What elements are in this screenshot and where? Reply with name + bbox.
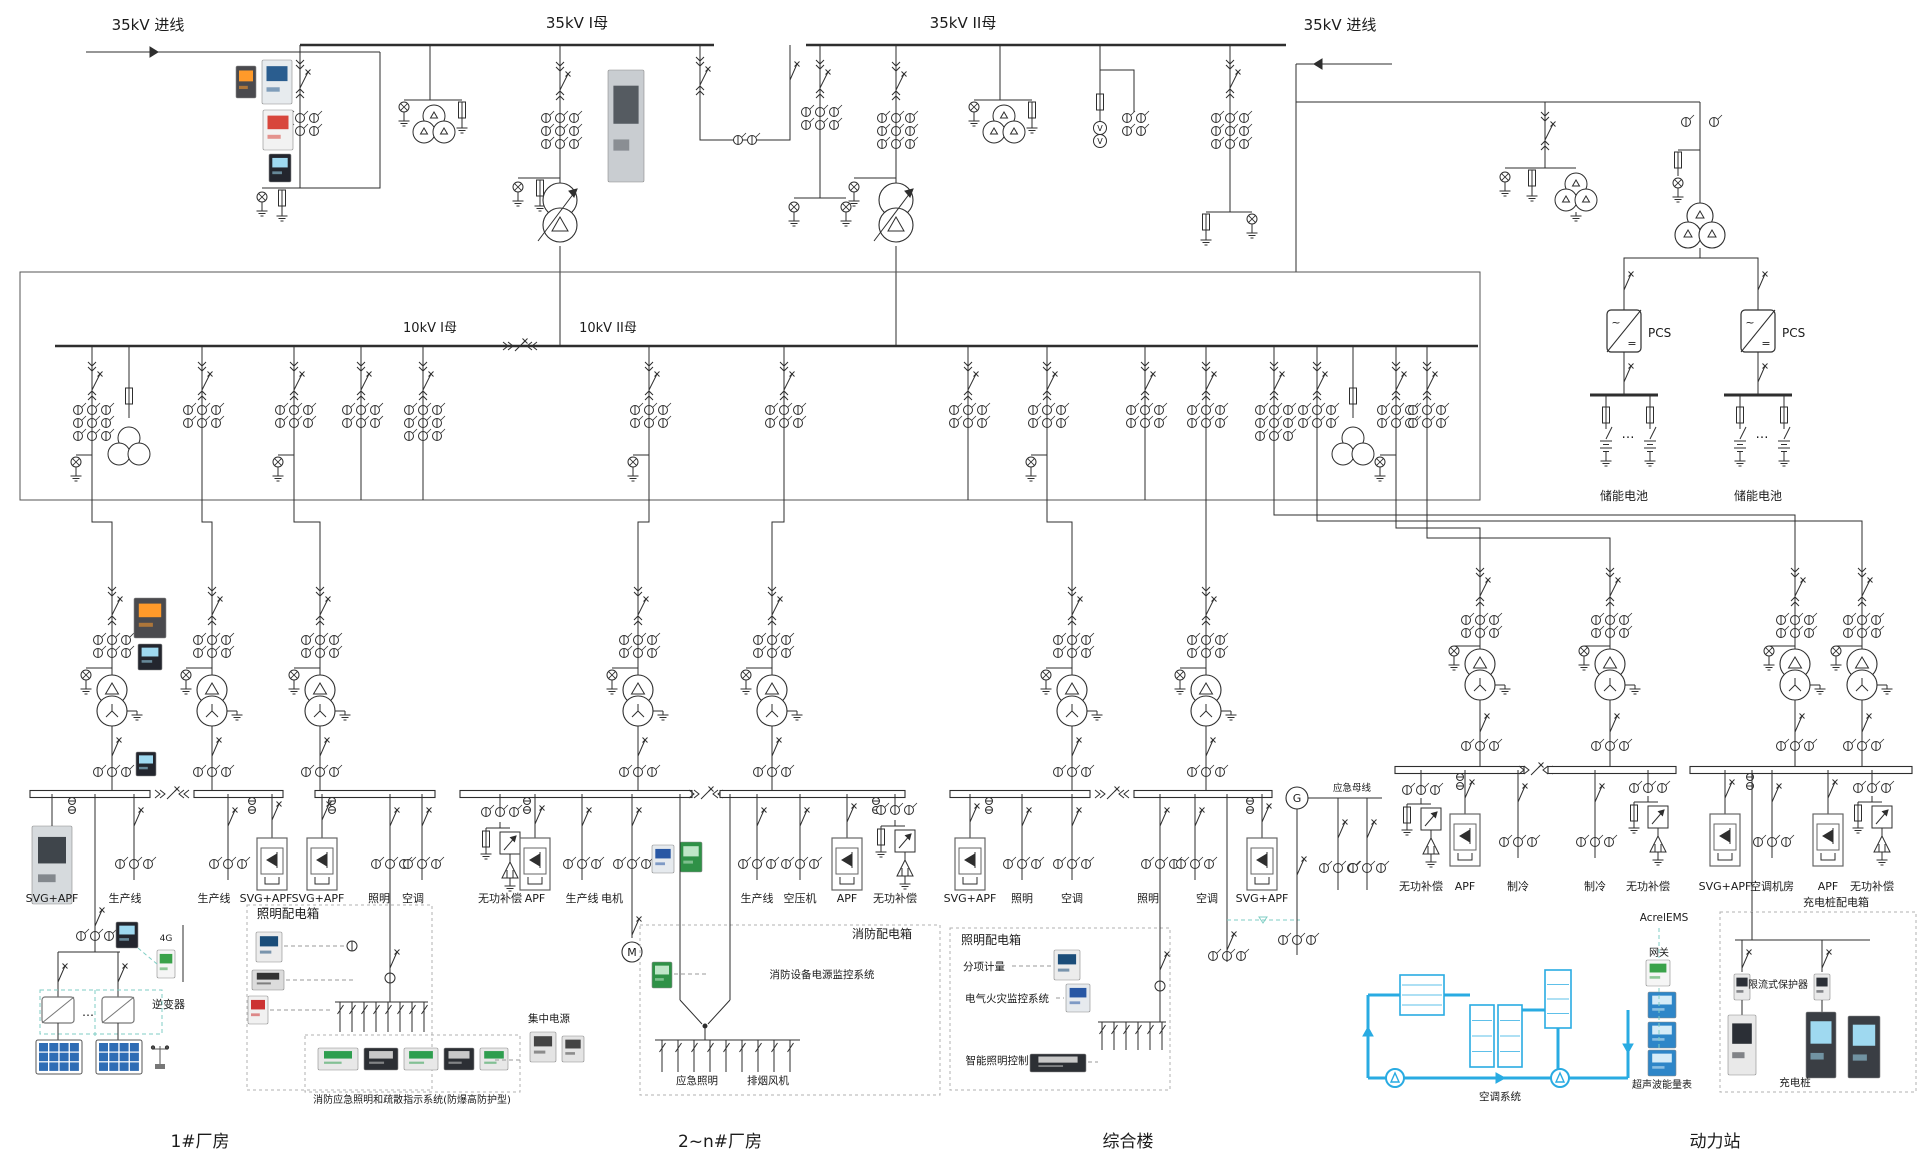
- svg-text:SVG+APF: SVG+APF: [1699, 880, 1752, 893]
- switch-icon: [970, 804, 980, 823]
- device-photo: [680, 842, 702, 872]
- indicator-lamp-icon: [789, 202, 800, 226]
- apf-cabinet-icon: [1247, 838, 1277, 890]
- feeder-branches: [1100, 1022, 1166, 1050]
- disconnector-icon: [892, 62, 907, 100]
- svg-text:35kV II母: 35kV II母: [930, 14, 997, 32]
- switch-icon: [1195, 808, 1205, 827]
- text-label: APF: [525, 892, 546, 905]
- switch-icon: [1338, 820, 1348, 839]
- disconnector-icon: [556, 62, 571, 100]
- riser-icon: [1457, 774, 1464, 790]
- switch-icon: [847, 804, 857, 823]
- svg-text:生产线: 生产线: [109, 891, 142, 905]
- text-label: 储能电池: [1600, 488, 1648, 503]
- flow-arrow-icon: [1363, 1027, 1373, 1036]
- text-label: 无功补偿: [1626, 879, 1670, 893]
- switch-icon: [1227, 932, 1237, 951]
- text-label: SVG+APF: [944, 892, 997, 905]
- switch-icon: [1160, 952, 1170, 971]
- fuse-icon: [1350, 388, 1357, 404]
- text-label: …: [1756, 427, 1769, 442]
- text-label: 10kV II母: [579, 321, 637, 336]
- svg-text:APF: APF: [1818, 880, 1839, 893]
- lv-busbar: [1134, 791, 1272, 798]
- voltmeter-icon: VV: [1094, 122, 1107, 148]
- apf-cabinet-icon: [1813, 814, 1843, 866]
- switch-icon: [1725, 780, 1735, 799]
- wire: [1047, 500, 1072, 560]
- ground-icon: [1571, 212, 1582, 221]
- switch-icon: [1742, 950, 1752, 969]
- svg-text:空压机: 空压机: [784, 891, 817, 905]
- capacitor-bank-icon: [1629, 796, 1669, 865]
- text-label: 生产线: [566, 891, 599, 905]
- svg-text:35kV 进线: 35kV 进线: [1304, 16, 1377, 34]
- text-label: SVG+APF: [240, 892, 293, 905]
- ats-icon: [680, 1000, 730, 1028]
- text-label: 充电桩: [1779, 1076, 1811, 1089]
- ct-icon: [1279, 933, 1320, 945]
- fuse-icon: [1675, 152, 1682, 168]
- text-label: 电气火灾监控系统: [965, 992, 1049, 1005]
- riser-icon: [1247, 798, 1254, 814]
- device-photo: [263, 110, 293, 150]
- pump-icon: [1386, 1069, 1404, 1087]
- lv-busbar: [460, 791, 692, 798]
- transformer-bay: [81, 560, 143, 794]
- apf-cabinet-icon: [307, 838, 337, 890]
- text-label: 空压机: [784, 891, 817, 905]
- lv-busbar: [1548, 767, 1676, 774]
- device-photo: [318, 1048, 358, 1070]
- device-photo: [364, 1048, 398, 1070]
- text-label: SVG+APF: [292, 892, 345, 905]
- text-label: 35kV II母: [930, 14, 997, 32]
- three-winding-transformer-icon: [1332, 427, 1374, 465]
- ct-icon: [564, 857, 605, 869]
- wire: [294, 500, 320, 560]
- text-label: APF: [837, 892, 858, 905]
- switch-icon: [1518, 784, 1528, 803]
- ct-icon: [614, 857, 655, 869]
- capacitor-bank-icon: [481, 822, 521, 891]
- pcs-converter-icon: ~=: [1607, 310, 1641, 352]
- text-label: 4G: [160, 934, 173, 944]
- transformer-bay: [1579, 548, 1641, 770]
- text-label: 35kV 进线: [112, 16, 185, 34]
- mv-feeder: [405, 346, 446, 500]
- svg-text:PCS: PCS: [1782, 326, 1805, 340]
- svg-text:…: …: [82, 1005, 94, 1019]
- svg-text:PCS: PCS: [1648, 326, 1671, 340]
- device-photo: [1648, 1022, 1676, 1048]
- three-winding-transformer-icon: [108, 427, 150, 465]
- text-label: 制冷: [1584, 880, 1606, 893]
- text-label: 空调系统: [1479, 1090, 1521, 1103]
- device-photo: [134, 598, 166, 638]
- switch-icon: [1072, 808, 1082, 827]
- ct-icon: [1349, 861, 1390, 873]
- flow-arrow-icon: [1623, 1044, 1633, 1053]
- switch-icon: [1262, 804, 1272, 823]
- text-label: 照明: [1011, 892, 1033, 905]
- device-photo: [1030, 1054, 1086, 1072]
- battery-string-icon: [1600, 395, 1612, 466]
- text-label: 超声波能量表: [1632, 1078, 1692, 1091]
- text-label: 照明: [1137, 892, 1159, 905]
- wire: [700, 45, 790, 140]
- svg-text:35kV I母: 35kV I母: [546, 14, 608, 32]
- wire: [1100, 70, 1134, 112]
- svg-text:无功补偿: 无功补偿: [1626, 879, 1670, 893]
- text-label: 制冷: [1507, 880, 1529, 893]
- device-photo: [138, 644, 162, 670]
- fuse-icon: [126, 388, 133, 404]
- text-label: PCS: [1648, 326, 1671, 340]
- three-winding-transformer-icon: [1555, 173, 1597, 211]
- comm-line: [138, 948, 157, 964]
- device-photo: [157, 950, 175, 978]
- indicator-lamp-icon: [273, 457, 284, 481]
- transformer-bay: [741, 560, 803, 794]
- capacitor-bank-icon: [1853, 796, 1893, 865]
- fuse-icon: [1527, 170, 1538, 201]
- svg-text:生产线: 生产线: [566, 891, 599, 905]
- svg-text:SVG+APF: SVG+APF: [1236, 892, 1289, 905]
- device-photo: [236, 66, 256, 98]
- flow-arrow-icon: [150, 47, 158, 57]
- text-label: 无功补偿: [1850, 879, 1894, 893]
- mv-feeder: [631, 346, 672, 500]
- capacitor-bank-icon: [1402, 798, 1442, 867]
- text-label: 10kV I母: [403, 321, 457, 336]
- wire: [1274, 500, 1795, 548]
- text-label: 生产线: [741, 891, 774, 905]
- device-photo: [1848, 1016, 1880, 1078]
- text-label: SVG+APF: [26, 892, 79, 905]
- ct-icon: [404, 857, 445, 869]
- three-winding-transformer-icon: [1675, 203, 1725, 248]
- svg-text:=: =: [1627, 337, 1636, 350]
- switch-icon: [134, 808, 144, 827]
- svg-text:消防配电箱: 消防配电箱: [852, 926, 912, 941]
- device-photo: [136, 752, 156, 776]
- apf-cabinet-icon: [257, 838, 287, 890]
- transformer-bay: [1831, 548, 1893, 770]
- device-photo: [248, 996, 268, 1024]
- ct-icon: [734, 133, 761, 145]
- text-label: 电机: [601, 891, 623, 905]
- device-photo: [256, 932, 282, 962]
- riser-icon: [986, 798, 993, 814]
- weather-station-icon: [151, 1046, 168, 1069]
- svg-text:无功补偿: 无功补偿: [873, 891, 917, 905]
- svg-text:综合楼: 综合楼: [1103, 1132, 1154, 1152]
- svg-text:逆变器: 逆变器: [152, 997, 185, 1011]
- riser-icon: [524, 798, 531, 814]
- device-photo: [1648, 1050, 1676, 1076]
- riser-icon: [329, 798, 336, 814]
- svg-text:智能照明控制: 智能照明控制: [966, 1054, 1029, 1067]
- disconnector-icon: [1226, 60, 1241, 98]
- indicator-lamp-icon: [1375, 457, 1386, 481]
- text-label: 无功补偿: [873, 891, 917, 905]
- ct-icon: [210, 857, 251, 869]
- text-label: …: [82, 1005, 94, 1019]
- mv-feeder: [184, 346, 225, 500]
- svg-text:2~n#厂房: 2~n#厂房: [678, 1132, 762, 1152]
- battery-string-icon: [1644, 395, 1656, 466]
- svg-text:应急照明: 应急照明: [676, 1074, 718, 1087]
- ct-icon: [1577, 835, 1618, 847]
- switch-icon: [390, 808, 400, 827]
- text-label: PCS: [1782, 326, 1805, 340]
- switch-icon: [632, 808, 642, 827]
- switch-icon: [1367, 820, 1377, 839]
- text-label: 无功补偿: [478, 891, 522, 905]
- apf-cabinet-icon: [955, 838, 985, 890]
- diagram-canvas: 35kV 进线35kV I母35kV II母VV35kV 进线~=PCS~=PC…: [0, 0, 1921, 1171]
- wire: [92, 500, 112, 560]
- device-photo: [1814, 974, 1830, 1000]
- device-photo: [652, 962, 672, 988]
- indicator-lamp-icon: [841, 202, 852, 226]
- mv-feeder: [766, 346, 807, 500]
- ct-icon: [1155, 981, 1165, 991]
- text-label: 消防设备电源监控系统: [770, 968, 875, 981]
- text-label: 集中电源: [528, 1012, 570, 1025]
- bus-tie-icon: [503, 339, 537, 352]
- switch-icon: [757, 808, 767, 827]
- hvac-unit: [1498, 1005, 1522, 1067]
- text-label: 35kV 进线: [1304, 16, 1377, 34]
- transformer-bay: [289, 560, 351, 794]
- ct-icon: [802, 105, 843, 130]
- indicator-lamp-icon: [1500, 172, 1511, 196]
- hvac-unit: [1470, 1005, 1494, 1067]
- switch-icon: [390, 950, 400, 969]
- indicator-lamp-icon: [1673, 178, 1684, 202]
- svg-text:照明: 照明: [1011, 892, 1033, 905]
- riser-icon: [69, 798, 76, 814]
- svg-text:无功补偿: 无功补偿: [1399, 879, 1443, 893]
- wire: [202, 500, 212, 560]
- switch-icon: [535, 806, 545, 825]
- svg-text:照明配电箱: 照明配电箱: [257, 906, 320, 921]
- switch-icon: [1465, 780, 1475, 799]
- svg-text:电机: 电机: [601, 891, 623, 905]
- device-photo: [1648, 992, 1676, 1018]
- switch-icon: [582, 808, 592, 827]
- svg-text:集中电源: 集中电源: [528, 1012, 570, 1025]
- device-photo: [444, 1048, 474, 1070]
- text-label: APF: [1455, 880, 1476, 893]
- indicator-lamp-icon: [71, 457, 82, 481]
- svg-text:~: ~: [1745, 316, 1754, 329]
- svg-text:照明: 照明: [368, 892, 390, 905]
- text-label: 综合楼: [1103, 1132, 1154, 1152]
- bus-tie-icon: [155, 787, 189, 800]
- ct-icon: [116, 857, 157, 869]
- mv-feeder: [343, 346, 384, 500]
- solar-panel-icon: [96, 1040, 142, 1074]
- svg-text:SVG+APF: SVG+APF: [26, 892, 79, 905]
- switch-icon: [228, 808, 238, 827]
- svg-text:…: …: [1622, 427, 1635, 442]
- lv-busbar: [720, 791, 905, 798]
- ct-icon: [878, 111, 919, 149]
- svg-text:照明配电箱: 照明配电箱: [961, 932, 1021, 947]
- ct-icon: [782, 857, 823, 869]
- svg-text:充电桩配电箱: 充电桩配电箱: [1803, 895, 1869, 909]
- flow-arrow-icon: [1496, 1073, 1505, 1083]
- device-photo: [116, 922, 138, 948]
- ct-icon: [1142, 857, 1183, 869]
- indicator-lamp-icon: [257, 192, 268, 216]
- svg-text:充电桩: 充电桩: [1779, 1076, 1811, 1089]
- svg-text:制冷: 制冷: [1507, 880, 1529, 893]
- transformer-bay: [1764, 548, 1826, 770]
- ct-icon: [1754, 835, 1795, 847]
- text-label: 消防配电箱: [852, 926, 912, 941]
- wire: [1624, 248, 1700, 310]
- pcs-converter-icon: ~=: [1741, 310, 1775, 352]
- svg-text:1#厂房: 1#厂房: [170, 1132, 229, 1152]
- battery-string-icon: [1778, 395, 1790, 466]
- device-photo: [608, 70, 644, 182]
- wire: [1396, 500, 1480, 548]
- mv-feeder: [1409, 346, 1450, 500]
- svg-text:~: ~: [1611, 316, 1620, 329]
- transformer-bay: [607, 560, 669, 794]
- text-label: 无功补偿: [1399, 879, 1443, 893]
- svg-text:…: …: [1756, 427, 1769, 442]
- text-label: 应急照明: [676, 1074, 718, 1087]
- switch-icon: [1624, 272, 1634, 291]
- indicator-lamp-icon: [969, 102, 980, 126]
- apf-cabinet-icon: [832, 838, 862, 890]
- text-label: …: [1622, 427, 1635, 442]
- single-line-diagram: 35kV 进线35kV I母35kV II母VV35kV 进线~=PCS~=PC…: [0, 0, 1921, 1171]
- svg-text:动力站: 动力站: [1690, 1132, 1741, 1152]
- svg-text:应急母线: 应急母线: [1333, 782, 1372, 794]
- svg-text:10kV I母: 10kV I母: [403, 321, 457, 336]
- switch-icon: [1022, 808, 1032, 827]
- riser-icon: [249, 798, 256, 814]
- indicator-lamp-icon: [849, 182, 860, 206]
- svg-text:SVG+APF: SVG+APF: [944, 892, 997, 905]
- device-photo: [652, 845, 674, 873]
- switch-icon: [1772, 784, 1782, 803]
- disconnector-icon: [696, 57, 711, 95]
- ct-icon: [1004, 857, 1045, 869]
- ct-icon: [385, 973, 395, 983]
- text-label: 逆变器: [152, 997, 185, 1011]
- device-photo: [480, 1048, 508, 1070]
- oltc-transformer-icon: [874, 183, 913, 242]
- svg-text:SVG+APF: SVG+APF: [292, 892, 345, 905]
- indicator-lamp-icon: [1026, 457, 1037, 481]
- text-label: 储能电池: [1734, 488, 1782, 503]
- switch-icon: [800, 808, 810, 827]
- text-label: 生产线: [109, 891, 142, 905]
- svg-text:空调: 空调: [1196, 891, 1218, 905]
- device-photo: [1728, 1015, 1756, 1075]
- device-photo: [1054, 950, 1080, 980]
- mv-feeder: [1029, 346, 1070, 500]
- svg-text:无功补偿: 无功补偿: [1850, 879, 1894, 893]
- text-label: 照明: [368, 892, 390, 905]
- svg-text:APF: APF: [525, 892, 546, 905]
- text-label: 空调: [402, 891, 424, 905]
- switch-icon: [118, 964, 128, 983]
- text-label: APF: [1818, 880, 1839, 893]
- ct-icon: [347, 941, 357, 951]
- mv-feeder: [1127, 346, 1168, 500]
- svg-text:生产线: 生产线: [741, 891, 774, 905]
- ct-icon: [877, 803, 918, 815]
- svg-text:V: V: [1097, 137, 1103, 146]
- switch-icon: [422, 808, 432, 827]
- lv-busbar: [30, 791, 150, 798]
- svg-text:空调: 空调: [1061, 891, 1083, 905]
- text-label: 消防应急照明和疏散指示系统(防爆高防护型): [313, 1093, 511, 1106]
- fuse-icon: [457, 102, 468, 133]
- solar-panel-icon: [36, 1040, 82, 1074]
- ct-icon: [542, 111, 583, 149]
- switch-icon: [1758, 272, 1768, 291]
- indicator-lamp-icon: [513, 182, 524, 206]
- disconnector-icon: [296, 60, 311, 98]
- text-label: SVG+APF: [1699, 880, 1752, 893]
- wire: [1427, 500, 1610, 548]
- ct-icon: [1403, 783, 1444, 795]
- text-label: 照明配电箱: [961, 932, 1021, 947]
- svg-text:G: G: [1293, 792, 1302, 805]
- fuse-icon: [1201, 214, 1212, 245]
- ct-icon: [1054, 857, 1095, 869]
- feeder-branches: [338, 1002, 428, 1032]
- device-photo: [404, 1048, 438, 1070]
- apf-cabinet-icon: [1450, 814, 1480, 866]
- svg-text:10kV II母: 10kV II母: [579, 321, 637, 336]
- text-label: 限流式保护器: [1748, 978, 1808, 991]
- ct-icon: [739, 857, 780, 869]
- svg-text:空调系统: 空调系统: [1479, 1090, 1521, 1103]
- text-label: 排烟风机: [747, 1074, 789, 1087]
- mv-feeder: [950, 346, 991, 500]
- indicator-lamp-icon: [1247, 214, 1258, 238]
- mv-feeder: [276, 346, 317, 500]
- pump-icon: [1551, 1069, 1569, 1087]
- text-label: 应急母线: [1333, 782, 1372, 794]
- apf-cabinet-icon: [520, 838, 550, 890]
- hvac-unit: [1545, 970, 1571, 1028]
- svg-text:制冷: 制冷: [1584, 880, 1606, 893]
- text-label: 35kV I母: [546, 14, 608, 32]
- text-label: 分项计量: [963, 960, 1005, 973]
- ct-icon: [482, 805, 523, 817]
- switch-icon: [1595, 784, 1605, 803]
- ct-icon: [1854, 781, 1895, 793]
- device-photo: [252, 970, 284, 990]
- bus-tie-icon: [1095, 787, 1129, 800]
- three-winding-transformer-icon: [983, 105, 1025, 143]
- mv-feeder: [74, 346, 115, 500]
- text-label: 生产线: [198, 891, 231, 905]
- svg-text:AcrelEMS: AcrelEMS: [1640, 912, 1689, 924]
